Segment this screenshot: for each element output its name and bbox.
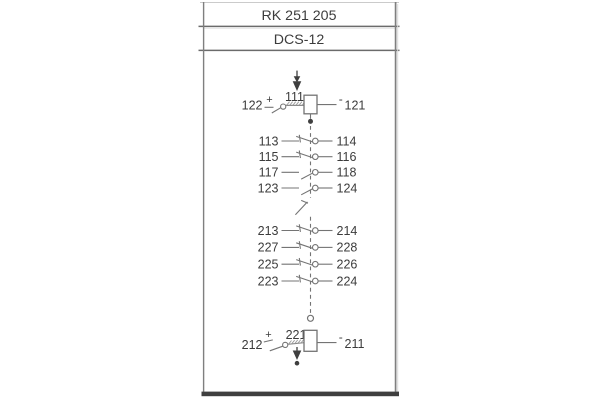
coil-switch-blade-top	[272, 108, 281, 113]
series-label: DCS-12	[274, 32, 325, 48]
coil-box-top	[304, 95, 317, 114]
terminal-label-123: 123	[258, 181, 279, 195]
coil-switch-pivot-circle-top	[281, 104, 286, 109]
contact-stop-tick	[299, 224, 300, 232]
contact-row-227-228: 227228	[258, 241, 358, 255]
contact-terminal-circle	[313, 138, 319, 144]
terminal-label-122: 122	[242, 99, 263, 113]
contact-stop-tick	[299, 275, 300, 283]
terminal-label-116: 116	[337, 150, 357, 164]
terminal-label-115: 115	[259, 150, 279, 164]
terminal-label-212: 212	[242, 338, 263, 352]
contact-rows-layer: 1131141151161171181231242132142272282252…	[258, 134, 358, 288]
contact-terminal-circle	[313, 154, 319, 160]
terminal-label-223: 223	[258, 274, 279, 288]
plug-direction-arrow-top	[293, 71, 302, 91]
coil-switch-pivot-circle-bottom	[283, 342, 288, 347]
polarity-plus-bottom: +	[265, 329, 271, 341]
contact-terminal-circle	[313, 261, 319, 267]
terminal-label-114: 114	[337, 134, 357, 148]
contact-row-213-214: 213214	[258, 224, 358, 238]
bottom-bar	[202, 392, 400, 397]
group-separator-blade	[295, 200, 308, 214]
coil-terminal-label-221: 221	[286, 328, 307, 342]
terminal-label-213: 213	[258, 224, 279, 238]
bottom-coil-section: 212 + 221 - 211	[242, 328, 365, 366]
terminal-label-228: 228	[337, 241, 358, 255]
model-number-label: RK 251 205	[262, 8, 337, 24]
terminal-label-211: 211	[345, 337, 365, 351]
terminal-label-225: 225	[258, 258, 279, 272]
plug-direction-arrow-bottom	[293, 347, 302, 366]
contact-row-115-116: 115116	[259, 150, 357, 164]
contact-stop-tick	[299, 151, 300, 159]
contact-row-225-226: 225226	[258, 258, 358, 272]
coil-terminal-label-111: 111	[285, 90, 304, 104]
terminal-label-113: 113	[259, 134, 279, 148]
contact-terminal-circle	[313, 185, 319, 191]
contact-terminal-circle	[313, 278, 319, 284]
polarity-minus-top: -	[339, 92, 343, 106]
junction-dot	[308, 119, 313, 124]
contact-row-113-114: 113114	[259, 134, 357, 148]
polarity-plus-top: +	[266, 94, 272, 106]
coil-switch-blade-bottom	[270, 346, 283, 351]
contact-stop-tick	[299, 258, 300, 266]
linkage-end-circle	[308, 315, 314, 321]
contact-terminal-circle	[313, 228, 319, 234]
contact-row-223-224: 223224	[258, 274, 358, 288]
contact-stop-tick	[299, 241, 300, 249]
coil-hatched-wire-bottom	[288, 343, 304, 345]
terminal-label-226: 226	[337, 258, 358, 272]
terminal-label-118: 118	[337, 166, 357, 180]
terminal-label-124: 124	[337, 181, 358, 195]
contact-terminal-circle	[313, 170, 319, 176]
contact-terminal-circle	[313, 245, 319, 251]
coil-box-bottom	[304, 330, 317, 351]
relay-terminal-diagram-svg: RK 251 205 DCS-12 122 + 111 - 121 113114…	[0, 0, 600, 400]
terminal-label-121: 121	[345, 99, 366, 113]
contact-stop-tick	[299, 135, 300, 143]
terminal-label-117: 117	[259, 166, 279, 180]
top-coil-section: 122 + 111 - 121	[242, 71, 366, 124]
contact-row-117-118: 117118	[259, 166, 357, 180]
contact-row-123-124: 123124	[258, 181, 358, 195]
polarity-minus-bottom: -	[339, 330, 343, 344]
terminal-label-227: 227	[258, 241, 279, 255]
terminal-diagram: RK 251 205 DCS-12 122 + 111 - 121 113114…	[0, 0, 600, 400]
terminal-label-224: 224	[337, 274, 358, 288]
terminal-label-214: 214	[337, 224, 358, 238]
